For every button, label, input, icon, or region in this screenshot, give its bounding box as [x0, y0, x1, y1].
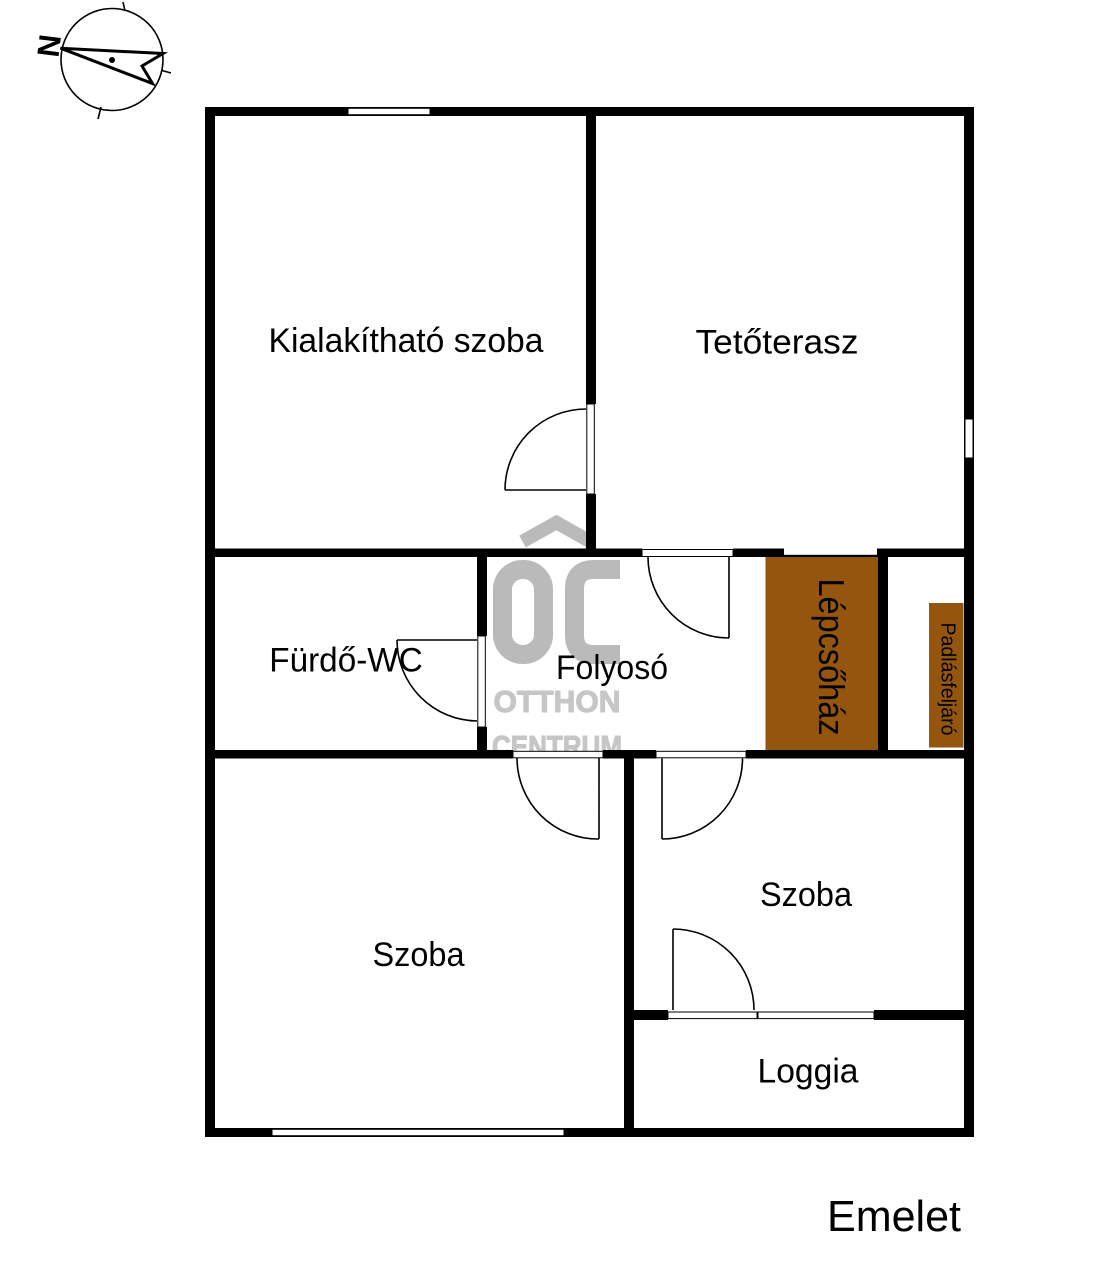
- svg-text:Lépcsőház: Lépcsőház: [811, 579, 852, 736]
- svg-text:Folyosó: Folyosó: [556, 649, 668, 687]
- svg-text:N: N: [30, 33, 67, 59]
- svg-text:CENTRUM: CENTRUM: [492, 729, 622, 764]
- svg-text:Tetőterasz: Tetőterasz: [696, 324, 859, 362]
- svg-text:Szoba: Szoba: [760, 876, 853, 914]
- svg-text:Szoba: Szoba: [373, 936, 466, 974]
- svg-text:Emelet: Emelet: [827, 1192, 961, 1241]
- svg-text:Kialakítható szoba: Kialakítható szoba: [269, 322, 545, 360]
- svg-text:Loggia: Loggia: [758, 1053, 860, 1091]
- svg-text:Padlásfeljáró: Padlásfeljáró: [937, 623, 960, 736]
- svg-text:Fürdő-WC: Fürdő-WC: [269, 642, 423, 680]
- svg-text:OTTHON: OTTHON: [494, 684, 621, 719]
